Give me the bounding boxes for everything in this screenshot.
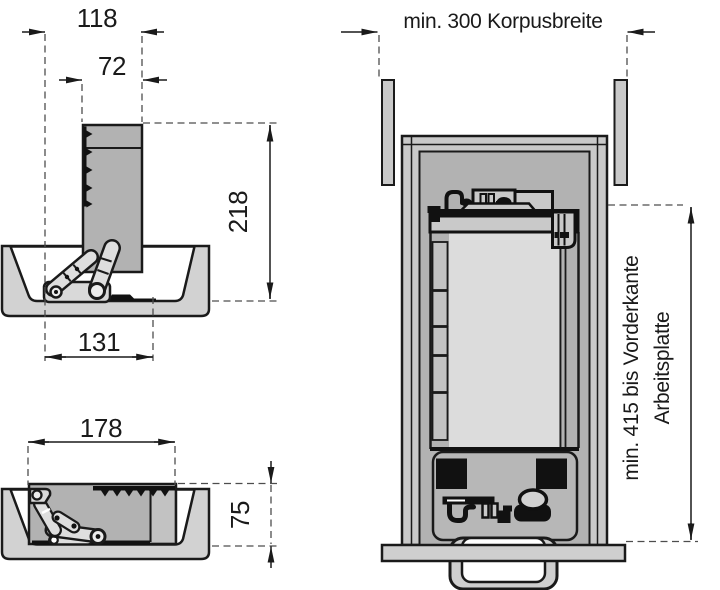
cabinet-side-left — [382, 80, 394, 185]
floor-mount-strip — [108, 295, 156, 302]
dim-label-base-length: 131 — [78, 327, 120, 357]
latch-pin — [492, 504, 498, 518]
latch-foot — [498, 511, 511, 524]
dim-label-panel-width: 72 — [98, 51, 126, 81]
dim-label-depth-line1: min. 415 bis Vorderkante — [620, 255, 643, 480]
side-view-open — [2, 125, 209, 316]
mount-step — [431, 216, 440, 222]
dim-label-total-width: 118 — [77, 3, 118, 33]
wall-segment-stack — [433, 242, 448, 440]
latch-pin — [483, 504, 489, 518]
technical-drawing-canvas: 118 72 218 131 178 75 min. 300 Korpusbre… — [0, 0, 720, 590]
bracket-tooth — [566, 232, 570, 238]
cabinet-side-right — [615, 80, 628, 185]
mount-step — [428, 206, 441, 213]
bracket-tooth — [555, 232, 559, 238]
pivot-large — [90, 284, 105, 299]
folded-unit-end-cap — [152, 486, 174, 542]
bin-bottom-edge — [430, 447, 579, 451]
bin-cavity — [449, 233, 559, 448]
side-view-folded — [2, 484, 209, 559]
mount-pad-right — [536, 459, 567, 490]
dim-label-folded-length: 178 — [80, 413, 122, 443]
bracket-tooth — [560, 232, 564, 238]
pivot-small — [33, 491, 42, 500]
pivot-large-center — [96, 534, 101, 539]
latch-foot-step — [503, 506, 512, 512]
dim-label-cabinet-width: min. 300 Korpusbreite — [403, 10, 602, 33]
pivot-small-center — [54, 290, 58, 294]
top-view — [382, 80, 627, 589]
latch-bar-slit — [447, 500, 465, 502]
mount-pad-left — [436, 459, 467, 490]
knob — [520, 490, 547, 509]
drawing-svg: 118 72 218 131 178 75 min. 300 Korpusbre… — [0, 0, 720, 590]
dim-label-folded-height: 75 — [225, 501, 255, 529]
dim-label-depth-line2: Arbeitsplatte — [651, 312, 674, 425]
drawer-front-panel — [382, 545, 625, 561]
dim-label-height-open: 218 — [223, 191, 253, 233]
